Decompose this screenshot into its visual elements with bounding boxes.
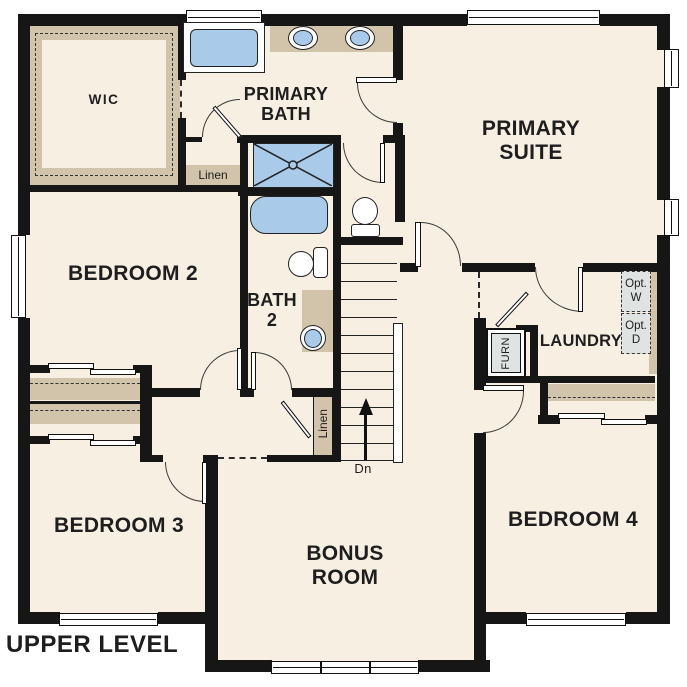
wall — [237, 135, 341, 143]
wall — [238, 187, 341, 196]
closet-label-linen-hall-wrap: Linen — [313, 392, 333, 456]
wall — [205, 660, 272, 672]
window-icon — [271, 661, 419, 674]
stair-tread — [341, 443, 393, 444]
toilet-icon — [288, 251, 314, 277]
wall — [626, 612, 670, 624]
sink-basin — [304, 329, 322, 348]
bedroom2-closet-shelf — [30, 378, 140, 400]
room-label-bedroom-3: BEDROOM 3 — [29, 514, 209, 538]
window-icon — [59, 613, 158, 626]
door-leaf — [251, 352, 256, 390]
door-leaf — [356, 77, 397, 83]
window-icon — [664, 49, 679, 88]
bedroom2-closet-rod — [30, 383, 140, 384]
door-leaf — [380, 143, 385, 183]
wall — [393, 26, 403, 80]
wall — [28, 14, 186, 26]
stair-direction-arrow-shaft — [364, 414, 367, 460]
toilet-tank — [313, 247, 328, 278]
bedroom3-closet-rod — [30, 410, 140, 411]
wall — [18, 185, 248, 192]
wall — [150, 388, 200, 397]
wall — [474, 433, 486, 672]
wall — [600, 14, 662, 26]
room-label-bonus-room: BONUS ROOM — [290, 542, 400, 589]
wall — [267, 455, 341, 462]
sliding-door-icon — [558, 413, 605, 419]
shower-glass-lines — [254, 144, 332, 186]
wall — [18, 14, 30, 235]
wall — [18, 318, 30, 624]
page-title: UPPER LEVEL — [6, 632, 266, 659]
sliding-door-icon — [90, 440, 136, 446]
sink-basin — [293, 30, 313, 46]
stairs-down-label: Dn — [345, 462, 381, 477]
room-label-wic: WIC — [74, 92, 134, 107]
wic-opening-dashed — [180, 80, 182, 118]
wall — [462, 263, 535, 272]
wall — [152, 455, 163, 462]
bedroom4-closet-rod — [548, 397, 655, 398]
door-leaf — [415, 222, 421, 267]
stair-tread — [341, 263, 397, 264]
wall — [18, 612, 60, 624]
stair-tread — [341, 389, 393, 390]
optional-washer-label: Opt. W — [623, 278, 649, 304]
door-leaf — [578, 267, 583, 312]
room-label-bedroom-4: BEDROOM 4 — [483, 508, 663, 532]
window-icon — [526, 613, 626, 626]
room-label-primary-suite: PRIMARY SUITE — [456, 117, 606, 164]
wall — [178, 118, 186, 187]
wall — [538, 415, 560, 424]
stair-tread — [341, 353, 393, 354]
window-icon — [467, 10, 600, 25]
sink-basin — [350, 30, 370, 46]
wall — [30, 436, 50, 444]
stair-tread — [341, 425, 393, 426]
wall — [657, 235, 670, 624]
bedroom4-closet-shelf — [548, 384, 655, 401]
wall — [333, 135, 341, 458]
wall — [333, 237, 403, 245]
room-label-primary-bath: PRIMARY BATH — [236, 84, 336, 124]
sliding-door-icon — [48, 434, 94, 440]
stair-direction-arrow-head — [359, 398, 373, 415]
sliding-door-icon — [48, 363, 94, 369]
wall — [140, 436, 152, 462]
wall — [140, 367, 152, 445]
wall — [657, 14, 670, 50]
closet-label-linen-hall: Linen — [316, 409, 330, 438]
bonus-opening-dashed — [218, 457, 267, 459]
furnace-box-frame: FURN — [486, 328, 526, 378]
bathtub-icon — [250, 196, 328, 234]
stair-tread — [341, 335, 393, 336]
closet-divider-wall — [30, 401, 140, 404]
window-divider — [320, 662, 322, 673]
optional-washer-box: Opt. W — [621, 271, 651, 312]
wall — [395, 135, 405, 222]
shower-icon — [253, 143, 334, 188]
bathtub-icon — [190, 29, 258, 67]
toilet-icon — [352, 197, 378, 225]
wall — [393, 123, 403, 137]
sliding-door-icon — [90, 369, 136, 375]
window-icon — [11, 235, 26, 318]
stair-tread — [341, 281, 397, 282]
stair-tread — [341, 299, 397, 300]
closet-label-linen-primary: Linen — [186, 169, 240, 182]
furnace-icon: FURN — [491, 333, 521, 373]
window-icon — [664, 199, 679, 236]
wall — [657, 87, 670, 200]
door-leaf — [483, 385, 524, 391]
sliding-door-icon — [601, 419, 647, 425]
room-label-bedroom-2: BEDROOM 2 — [43, 262, 223, 286]
room-label-laundry: LAUNDRY — [535, 332, 627, 350]
door-leaf — [202, 462, 207, 504]
wall — [186, 137, 202, 142]
stair-tread — [341, 317, 397, 318]
toilet-tank — [351, 224, 380, 237]
floor-plan: FURN Opt. W Opt. D WIC PRIMARY BATH PRIM… — [0, 0, 687, 687]
stair-tread — [341, 371, 393, 372]
bedroom3-closet-shelf — [30, 404, 140, 424]
wall — [203, 455, 218, 462]
stair-railing — [393, 323, 403, 463]
laundry-hall-opening-dashed — [478, 272, 480, 318]
door-leaf — [237, 348, 242, 390]
wall — [30, 365, 50, 373]
room-label-bath-2: BATH 2 — [242, 290, 302, 330]
wall — [262, 14, 467, 26]
window-divider — [369, 662, 371, 673]
furnace-label: FURN — [500, 337, 512, 370]
